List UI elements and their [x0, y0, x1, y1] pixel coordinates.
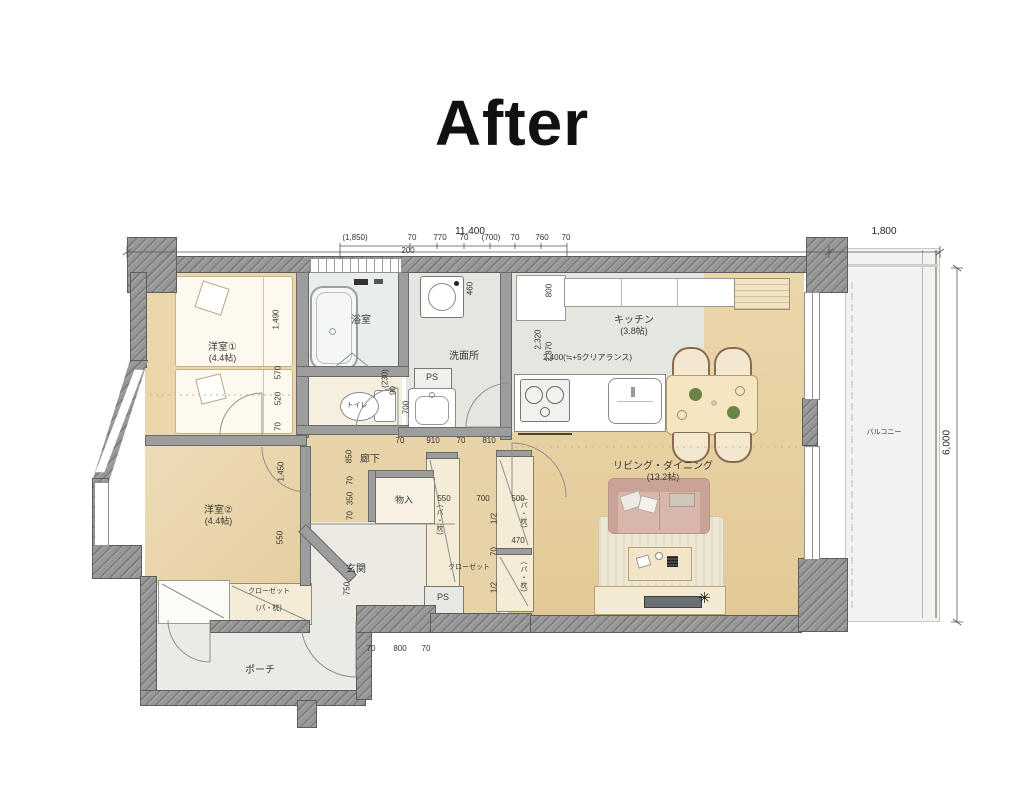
dim-hall-row: 910 [419, 436, 447, 445]
sofa [608, 478, 710, 534]
dining-chair [714, 347, 752, 378]
dim-hall-row: 810 [477, 436, 501, 445]
dim-left: 70 [274, 419, 283, 435]
bedroom2-window [94, 482, 109, 546]
dim-hall-row: 70 [453, 436, 469, 445]
dim-porch-row: 70 [363, 644, 379, 653]
plant-star: ✳ [698, 589, 711, 607]
page-title: After [0, 86, 1024, 160]
label-ps-lower: PS [424, 592, 462, 602]
dim-closet-half: 1/2 [490, 511, 499, 527]
outer-wall-left-upper [130, 272, 147, 368]
dim-sub: 200 [396, 246, 420, 255]
porch-wall-left [140, 576, 157, 706]
wall-bath-washroom [398, 272, 409, 370]
dim-hall: 70 [346, 508, 355, 524]
dim-sub: 70 [558, 233, 574, 242]
dim-sub: 70 [404, 233, 420, 242]
label-bath: 浴室 [336, 311, 386, 326]
bay-window [92, 360, 148, 482]
coffee-table [628, 547, 692, 581]
label-shelf-note-left: (パ・枕) [434, 505, 444, 567]
washroom-sink [408, 388, 456, 431]
label-bedroom1-size: (4.4帖) [185, 351, 260, 364]
dim-hall-row: 70 [392, 436, 408, 445]
label-ps-upper: PS [414, 372, 450, 382]
refrigerator-space [516, 275, 566, 321]
closet-right-column [496, 456, 534, 612]
dim-clearance: 2,400(≒+5クリアランス) [543, 352, 713, 363]
dim-closet-70: 70 [490, 544, 499, 560]
wall-toilet-bottom [296, 425, 409, 435]
outer-wall-left-block [92, 545, 142, 579]
floor-plan-sheet: After [0, 0, 1024, 800]
dim-toilet: 90 [389, 383, 398, 399]
label-shelf-note-b2: (パ・枕) [238, 603, 300, 613]
dim-balcony-width: 1,800 [854, 226, 914, 237]
dim-kitchen: 460 [466, 277, 475, 301]
label-closet-bedroom2: クローゼット [238, 586, 300, 596]
dim-sub: (700) [477, 233, 505, 242]
wall-storage-top [368, 470, 434, 478]
label-entrance: 玄関 [333, 560, 379, 575]
upper-cabinets [564, 278, 736, 307]
corner-top-right [806, 237, 848, 293]
counter-cabinet [734, 278, 790, 310]
dim-entrance: 750 [343, 577, 352, 601]
wall-closet-right-mid [496, 548, 532, 555]
label-balcony: バルコニー [856, 427, 912, 437]
dim-left: 550 [276, 526, 285, 550]
label-kitchen-size: (3.8帖) [600, 324, 668, 337]
dim-sub: (1,850) [333, 233, 377, 242]
kitchen-sink [608, 378, 662, 424]
dim-left: 570 [274, 361, 283, 385]
porch-wall-bottom [140, 690, 366, 706]
bath-window [310, 258, 402, 273]
living-window-lower [804, 446, 820, 560]
label-shelf-note-right-b: (パ・枕) [518, 562, 528, 612]
closet2-bottom-wall [210, 620, 310, 633]
wall-closet-right-top [496, 450, 532, 457]
wall-bedroom-divider [145, 435, 307, 446]
label-washroom: 洗面所 [433, 347, 495, 362]
dim-kitchen: 800 [545, 279, 554, 303]
dim-closet-half: 1/2 [490, 580, 499, 596]
dim-sink: 700 [402, 396, 411, 420]
dining-table [666, 375, 758, 435]
label-shelf-note-right-a: (パ・枕) [518, 498, 528, 548]
balcony-top-line [845, 264, 938, 267]
shoe-shelf [158, 580, 230, 624]
wall-bedroom1-bath [296, 272, 309, 438]
balcony-rail [922, 250, 937, 618]
wall-bedroom2-right [300, 446, 311, 586]
dim-sub: 70 [507, 233, 523, 242]
entrance-bottom-wall [356, 605, 436, 633]
label-storage: 物入 [381, 493, 427, 506]
bath-fixture [354, 279, 368, 285]
wall-bath-bottom [296, 366, 409, 377]
dim-porch-row: 800 [388, 644, 412, 653]
closet-bottom-wall [430, 613, 532, 633]
dim-kitchen: 2,320 [534, 323, 543, 357]
wall-closet-left-top [426, 452, 458, 459]
living-bottom-wall [530, 615, 802, 633]
dim-total-height: 6,000 [942, 421, 953, 465]
towel-bar [518, 433, 572, 435]
label-porch: ポーチ [230, 661, 290, 676]
dim-closet-row: 700 [471, 494, 495, 503]
porch-step-block [297, 700, 317, 728]
dim-closet-row: 550 [432, 494, 456, 503]
dim-left: 520 [274, 387, 283, 411]
stove [520, 379, 570, 422]
dim-sub: 760 [530, 233, 554, 242]
wall-storage-left [368, 470, 376, 522]
label-bedroom2-size: (4.4帖) [181, 514, 256, 527]
dim-porch-row: 70 [418, 644, 434, 653]
dim-left: 1,490 [272, 303, 281, 337]
living-window-upper [804, 292, 820, 400]
wall-washroom-kitchen [500, 272, 512, 440]
washing-machine [420, 276, 464, 318]
outer-wall-top [145, 256, 810, 273]
dim-sub: 770 [428, 233, 452, 242]
label-living-size: (13.2帖) [593, 470, 733, 483]
bath-shelf [374, 279, 383, 284]
corner-bottom-right [798, 558, 848, 632]
dim-left: 1,450 [277, 455, 286, 489]
label-closet-center: クローゼット [438, 562, 500, 572]
label-toilet: トイレ [342, 400, 372, 410]
label-hallway: 廊下 [350, 450, 390, 465]
porch-wall-right [356, 630, 372, 700]
dim-sub: 70 [456, 233, 472, 242]
right-wall-segment [802, 398, 818, 446]
bathtub [310, 286, 358, 370]
